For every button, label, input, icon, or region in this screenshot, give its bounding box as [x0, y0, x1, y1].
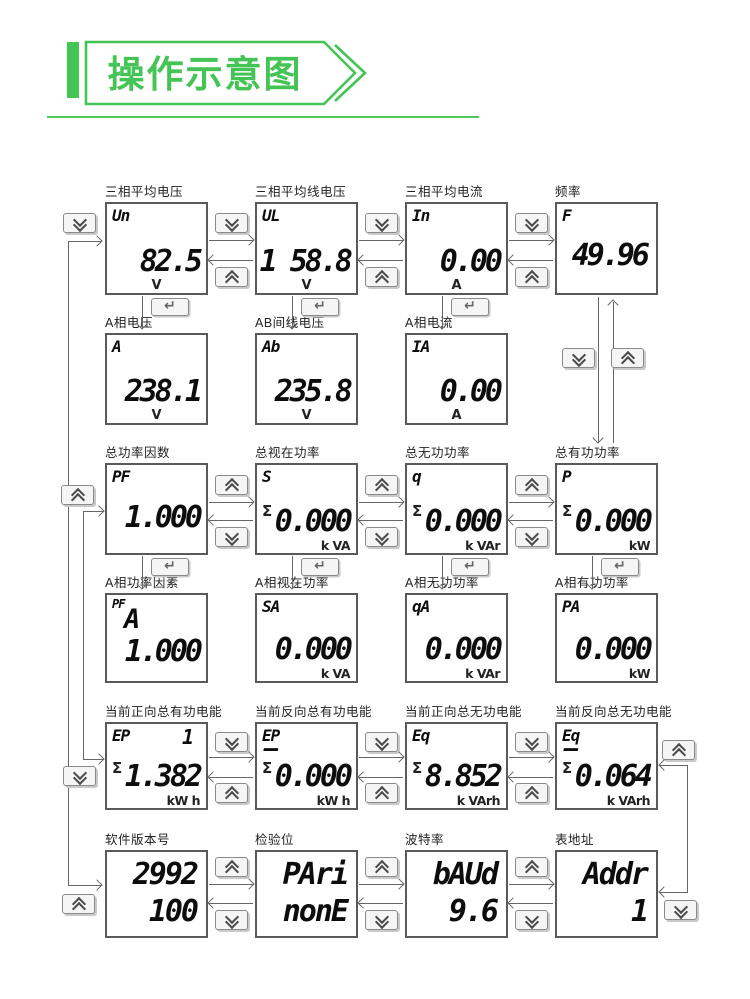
lcd-label: q [412, 467, 421, 486]
lcd-value: 8.852 [425, 759, 500, 794]
scroll-down-button[interactable] [515, 213, 548, 233]
scroll-up-button[interactable] [215, 857, 248, 877]
meter-eq-forward: 当前正向总无功电能 Eq Σ 8.852 k VArh [405, 705, 508, 810]
lcd-line2: 1 [631, 894, 647, 929]
lcd-unit: V [257, 278, 356, 293]
meter-ep-reverse: 当前反向总有功电能 EP – Σ 0.000 kW h [255, 705, 358, 810]
lcd-label: PF [112, 597, 124, 611]
scroll-up-button[interactable] [611, 348, 644, 368]
lcd-label: EP [112, 726, 129, 745]
arrow-right-icon [93, 753, 104, 764]
arrow-left-icon [507, 254, 518, 265]
arrow-left-icon [207, 897, 218, 908]
lcd-label: S [262, 467, 271, 486]
lcd-unit: k VAr [465, 538, 500, 553]
minus-symbol: – [564, 741, 576, 755]
lcd-panel: q Σ 0.000 k VAr [405, 463, 508, 555]
meter-parity: 检验位 PAri nonE [255, 833, 358, 938]
scroll-down-button[interactable] [515, 732, 548, 752]
lcd-panel: P Σ 0.000 kW [555, 463, 658, 555]
meter-ul: 三相平均线电压 UL 1 58.8 V [255, 185, 358, 295]
meter-un: 三相平均电压 Un 82.5 V [105, 185, 208, 295]
meter-in: 三相平均电流 In 0.00 A [405, 185, 508, 295]
lcd-panel: PA 0.000 kW [555, 593, 658, 683]
header-underline [47, 116, 479, 118]
lcd-value: 0.000 [275, 759, 350, 794]
lcd-panel: UL 1 58.8 V [255, 202, 358, 295]
arrow-left-icon [507, 514, 518, 525]
minus-symbol: – [264, 741, 276, 755]
scroll-down-button[interactable] [365, 910, 398, 930]
flow-line [687, 765, 688, 893]
sigma-symbol: Σ [412, 502, 422, 520]
scroll-up-button[interactable] [515, 267, 548, 287]
lcd-panel: Un 82.5 V [105, 202, 208, 295]
arrow-left-icon [207, 514, 218, 525]
lcd-panel: qA 0.000 k VAr [405, 593, 508, 683]
enter-button[interactable] [451, 298, 489, 316]
lcd-panel: bAUd 9.6 [405, 850, 508, 938]
lcd-panel: EP – Σ 0.000 kW h [255, 722, 358, 810]
scroll-up-button[interactable] [365, 475, 398, 495]
sigma-symbol: Σ [562, 759, 572, 777]
meter-uab: AB间线电压 Ab 235.8 V [255, 316, 358, 425]
scroll-down-button[interactable] [215, 910, 248, 930]
arrow-left-icon [207, 771, 218, 782]
meter-ia: A相电流 IA 0.00 A [405, 316, 508, 425]
lcd-unit: V [107, 278, 206, 293]
enter-button[interactable] [301, 298, 339, 316]
enter-button[interactable] [151, 558, 189, 576]
scroll-down-button[interactable] [664, 900, 697, 920]
scroll-up-button[interactable] [215, 783, 248, 803]
lcd-value: 238.1 [125, 374, 200, 409]
scroll-up-button[interactable] [515, 783, 548, 803]
meter-title: 三相平均线电压 [255, 185, 358, 200]
lcd-unit: A [407, 408, 506, 423]
meter-pfa: A相功率因素 PF A 1.000 [105, 576, 208, 683]
lcd-value: 1.382 [125, 759, 200, 794]
arrow-right-icon [393, 751, 404, 762]
flow-line [83, 511, 84, 760]
meter-baud: 波特率 bAUd 9.6 [405, 833, 508, 938]
lcd-value: 0.000 [275, 632, 350, 667]
meter-title: A相无功功率 [405, 576, 508, 591]
scroll-down-button[interactable] [365, 732, 398, 752]
meter-title: A相功率因素 [105, 576, 208, 591]
arrow-right-icon [543, 751, 554, 762]
meter-pf: 总功率因数 PF 1.000 [105, 446, 208, 555]
scroll-up-button[interactable] [215, 475, 248, 495]
arrow-right-icon [393, 234, 404, 245]
arrow-right-icon [393, 496, 404, 507]
lcd-unit: V [257, 408, 356, 423]
arrow-left-icon [658, 759, 669, 770]
meter-title: 波特率 [405, 833, 508, 848]
scroll-down-button[interactable] [215, 213, 248, 233]
lcd-value: 49.96 [572, 238, 647, 273]
lcd-panel: Ab 235.8 V [255, 333, 358, 425]
arrow-right-icon [91, 879, 102, 890]
meter-title: 总有功功率 [555, 446, 658, 461]
enter-button[interactable] [151, 298, 189, 316]
lcd-value: 82.5 [140, 244, 200, 279]
lcd-panel: EP 1 Σ 1.382 kW h [105, 722, 208, 810]
scroll-up-button[interactable] [515, 857, 548, 877]
meter-sa: A相视在功率 SA 0.000 k VA [255, 576, 358, 683]
arrow-left-icon [357, 514, 368, 525]
scroll-down-button[interactable] [562, 348, 595, 368]
operation-diagram: 操作示意图 三相平均电压 Un 82.5 V 三相平均线电压 UL 1 58.8… [0, 0, 750, 999]
lcd-value: 0.000 [425, 504, 500, 539]
lcd-panel: A 238.1 V [105, 333, 208, 425]
lcd-unit: k VA [321, 666, 350, 681]
lcd-panel: IA 0.00 A [405, 333, 508, 425]
lcd-panel: Eq Σ 8.852 k VArh [405, 722, 508, 810]
arrow-right-icon [243, 878, 254, 889]
meter-address: 表地址 Addr 1 [555, 833, 658, 938]
lcd-value: 0.064 [575, 759, 650, 794]
lcd-panel: Addr 1 [555, 850, 658, 938]
scroll-down-button[interactable] [365, 527, 398, 547]
meter-qa: A相无功功率 qA 0.000 k VAr [405, 576, 508, 683]
lcd-unit: k VA [321, 538, 350, 553]
page-title: 操作示意图 [108, 54, 303, 95]
scroll-down-button[interactable] [63, 213, 96, 233]
lcd-panel: SA 0.000 k VA [255, 593, 358, 683]
arrow-right-icon [243, 234, 254, 245]
sigma-symbol: Σ [112, 759, 122, 777]
lcd-unit: V [107, 408, 206, 423]
lcd-value: 0.00 [440, 374, 500, 409]
arrow-right-icon [543, 496, 554, 507]
arrow-right-icon [93, 505, 104, 516]
lcd-label: P [562, 467, 571, 486]
lcd-unit: k VArh [607, 793, 650, 808]
lcd-panel: In 0.00 A [405, 202, 508, 295]
lcd-label: F [562, 206, 571, 225]
sigma-symbol: Σ [262, 759, 272, 777]
meter-title: A相视在功率 [255, 576, 358, 591]
meter-title: 当前正向总有功电能 [105, 705, 208, 720]
lcd-unit: k VAr [465, 666, 500, 681]
scroll-up-button[interactable] [662, 740, 695, 760]
lcd-label: SA [262, 597, 279, 616]
meter-title: 表地址 [555, 833, 658, 848]
lcd-label: IA [412, 337, 429, 356]
meter-title: 软件版本号 [105, 833, 208, 848]
meter-title: 三相平均电流 [405, 185, 508, 200]
lcd-panel: F 49.96 [555, 202, 658, 295]
lcd-value: 1.000 [125, 634, 200, 669]
lcd-value: 0.000 [575, 504, 650, 539]
meter-title: 当前反向总无功电能 [555, 705, 658, 720]
lcd-line2: nonE [283, 894, 347, 929]
scroll-down-button[interactable] [215, 732, 248, 752]
arrow-left-icon [357, 254, 368, 265]
lcd-value: 1.000 [125, 500, 200, 535]
meter-pa: A相有功功率 PA 0.000 kW [555, 576, 658, 683]
arrow-right-icon [543, 878, 554, 889]
lcd-label: PA [562, 597, 579, 616]
meter-title: 当前正向总无功电能 [405, 705, 508, 720]
flow-line [598, 297, 599, 443]
arrow-down-icon [592, 432, 603, 443]
meter-title: A相有功功率 [555, 576, 658, 591]
lcd-label: A [112, 337, 121, 356]
arrow-left-icon [357, 771, 368, 782]
arrow-left-icon [507, 897, 518, 908]
lcd-panel: PAri nonE [255, 850, 358, 938]
lcd-value: 0.000 [575, 632, 650, 667]
scroll-down-button[interactable] [515, 527, 548, 547]
scroll-down-button[interactable] [63, 766, 96, 786]
header-accent-bar [67, 42, 79, 98]
arrow-right-icon [543, 234, 554, 245]
scroll-down-button[interactable] [365, 213, 398, 233]
meter-eq-reverse: 当前反向总无功电能 Eq – Σ 0.064 k VArh [555, 705, 658, 810]
lcd-line1: Addr [583, 857, 647, 892]
lcd-panel: PF 1.000 [105, 463, 208, 555]
scroll-up-button[interactable] [215, 267, 248, 287]
lcd-value: 1 58.8 [260, 244, 350, 279]
arrow-left-icon [658, 886, 669, 897]
flow-line [613, 302, 614, 443]
arrow-up-icon [607, 299, 618, 310]
meter-q: 总无功功率 q Σ 0.000 k VAr [405, 446, 508, 555]
meter-f: 频率 F 49.96 [555, 185, 658, 295]
meter-title: AB间线电压 [255, 316, 358, 331]
lcd-line2: 9.6 [449, 894, 497, 929]
lcd-unit: A [407, 278, 506, 293]
arrow-right-icon [243, 496, 254, 507]
enter-button[interactable] [301, 558, 339, 576]
meter-title: A相电流 [405, 316, 508, 331]
lcd-unit: kW h [317, 793, 350, 808]
lcd-label: Eq [412, 726, 429, 745]
lcd-unit: kW [629, 538, 650, 553]
meter-version: 软件版本号 2992 100 [105, 833, 208, 938]
arrow-left-icon [357, 897, 368, 908]
scroll-down-button[interactable] [515, 910, 548, 930]
scroll-up-button[interactable] [365, 267, 398, 287]
meter-title: 检验位 [255, 833, 358, 848]
meter-ep-forward: 当前正向总有功电能 EP 1 Σ 1.382 kW h [105, 705, 208, 810]
sigma-symbol: Σ [262, 502, 272, 520]
arrow-left-icon [207, 254, 218, 265]
lcd-label: Ab [262, 337, 279, 356]
meter-title: 当前反向总有功电能 [255, 705, 358, 720]
arrow-right-icon [91, 235, 102, 246]
lcd-line1: 2992 [133, 857, 197, 892]
scroll-up-button[interactable] [515, 475, 548, 495]
meter-title: A相电压 [105, 316, 208, 331]
arrow-right-icon [393, 878, 404, 889]
lcd-line1: PAri [283, 857, 347, 892]
meter-title: 总无功功率 [405, 446, 508, 461]
lcd-panel: S Σ 0.000 k VA [255, 463, 358, 555]
meter-title: 三相平均电压 [105, 185, 208, 200]
lcd-line2: 100 [149, 894, 197, 929]
lcd-panel: Eq – Σ 0.064 k VArh [555, 722, 658, 810]
sigma-symbol: Σ [412, 759, 422, 777]
lcd-label: PF [112, 467, 129, 486]
lcd-label: Un [112, 206, 129, 225]
header-banner: 操作示意图 [84, 38, 376, 108]
lcd-value: 0.000 [275, 504, 350, 539]
scroll-up-button[interactable] [365, 783, 398, 803]
lcd-value: 0.00 [440, 244, 500, 279]
lcd-unit: kW [629, 666, 650, 681]
enter-button[interactable] [451, 558, 489, 576]
lcd-label: UL [262, 206, 279, 225]
meter-s: 总视在功率 S Σ 0.000 k VA [255, 446, 358, 555]
lcd-value: 0.000 [425, 632, 500, 667]
scroll-up-button[interactable] [62, 894, 95, 914]
arrow-left-icon [507, 771, 518, 782]
sigma-symbol: Σ [562, 502, 572, 520]
lcd-unit: k VArh [457, 793, 500, 808]
meter-title: 频率 [555, 185, 658, 200]
flow-line [68, 241, 69, 886]
lcd-panel: 2992 100 [105, 850, 208, 938]
meter-ua: A相电压 A 238.1 V [105, 316, 208, 425]
banner-chevron-icon [335, 45, 365, 101]
lcd-label: qA [412, 597, 429, 616]
meter-p: 总有功功率 P Σ 0.000 kW [555, 446, 658, 555]
lcd-value: 235.8 [275, 374, 350, 409]
scroll-down-button[interactable] [215, 527, 248, 547]
lcd-unit: kW h [167, 793, 200, 808]
lcd-sublabel: A [124, 604, 139, 635]
meter-title: 总功率因数 [105, 446, 208, 461]
lcd-line1: bAUd [433, 857, 497, 892]
lcd-label: In [412, 206, 429, 225]
scroll-up-button[interactable] [365, 857, 398, 877]
tariff-digit: 1 [182, 725, 194, 749]
meter-title: 总视在功率 [255, 446, 358, 461]
enter-button[interactable] [601, 558, 639, 576]
arrow-right-icon [243, 751, 254, 762]
scroll-up-button[interactable] [61, 485, 94, 505]
lcd-panel: PF A 1.000 [105, 593, 208, 683]
